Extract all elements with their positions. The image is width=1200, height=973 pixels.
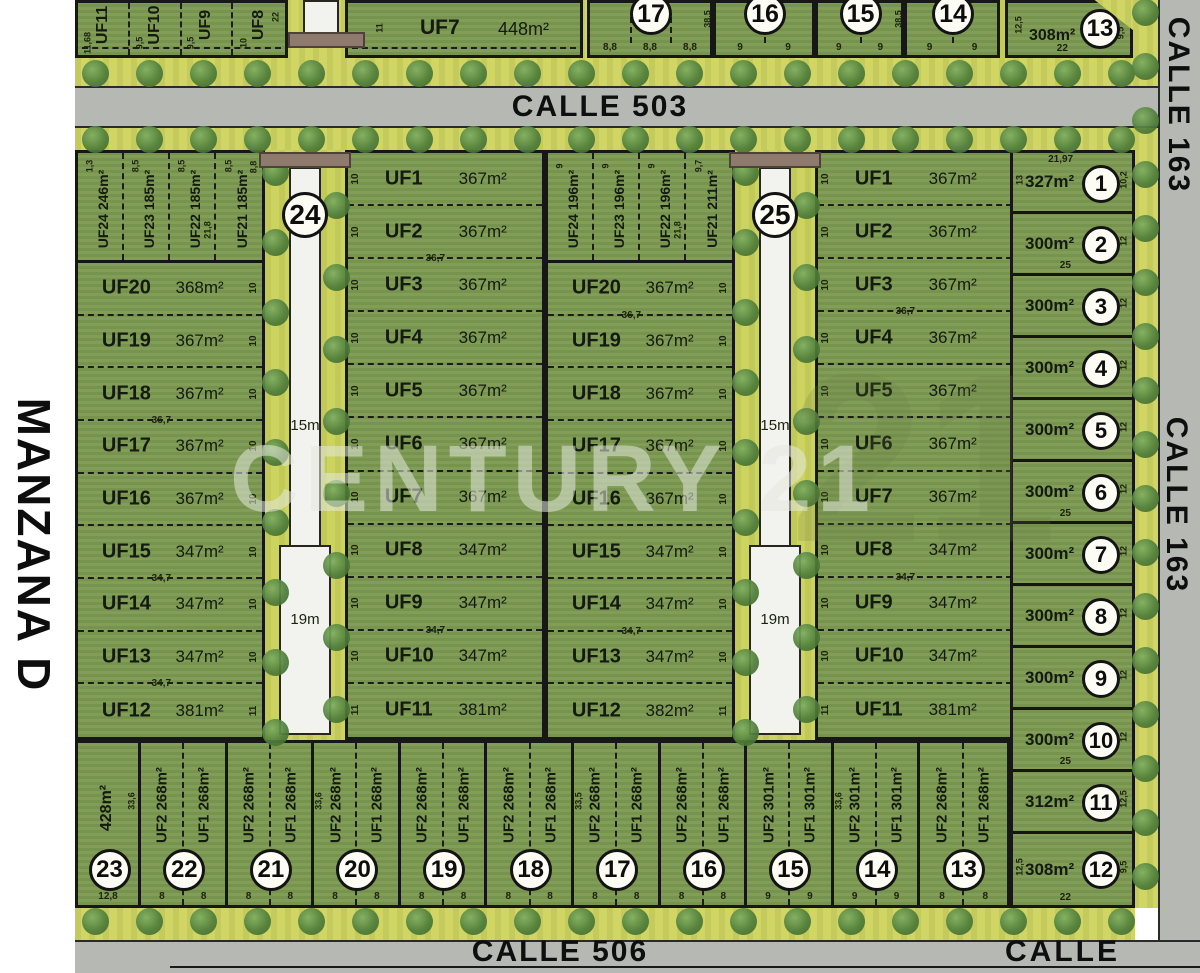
tree bbox=[732, 439, 759, 466]
bottom-dim: 8 bbox=[201, 892, 207, 902]
right-lot-10: 300m²101225 bbox=[1013, 710, 1132, 772]
bottom-dim: 9 bbox=[836, 43, 842, 53]
lot-label: UF21 211m² bbox=[705, 170, 719, 248]
tree bbox=[514, 60, 541, 87]
lot-number-circle: 21 bbox=[250, 849, 292, 891]
lot-area: 428m² bbox=[99, 785, 115, 831]
lot-number-circle: 2 bbox=[1082, 226, 1120, 264]
block-24-west: UF24 246m²1,3UF23 185m²8,5UF22 185m²8,52… bbox=[75, 150, 265, 740]
right-width-dim: 12 bbox=[1120, 484, 1129, 494]
lot-number-circle: 16 bbox=[683, 849, 725, 891]
tree bbox=[1132, 485, 1159, 512]
lot-number-circle: 4 bbox=[1082, 350, 1120, 388]
lot-label: UF1 bbox=[855, 167, 893, 190]
side-dim: 11 bbox=[376, 23, 385, 33]
tree bbox=[793, 480, 820, 507]
bottom-dim: 9 bbox=[972, 43, 978, 53]
lot-number-circle: 18 bbox=[510, 849, 552, 891]
bottom-dim: 25 bbox=[1060, 261, 1071, 271]
lot-area: 347m² bbox=[459, 593, 507, 613]
lot-label: UF17 bbox=[102, 435, 151, 458]
lot-25-UF12: UF12382m²11 bbox=[548, 684, 732, 737]
right-lot-3: 300m²312 bbox=[1013, 276, 1132, 338]
side-width-dim: 10 bbox=[719, 493, 729, 504]
lot-area: 367m² bbox=[459, 328, 507, 348]
lot-label: UF18 bbox=[102, 382, 151, 405]
tree bbox=[298, 60, 325, 87]
lot-label: UF2 268m² bbox=[328, 767, 343, 843]
lot-width-dim: 11,68 bbox=[83, 32, 92, 54]
tree bbox=[323, 696, 350, 723]
lot-area: 347m² bbox=[176, 594, 224, 614]
depth-dim: 33,6 bbox=[834, 793, 843, 811]
side-width-dim: 10 bbox=[821, 226, 831, 237]
tree bbox=[676, 60, 703, 87]
tree bbox=[244, 60, 271, 87]
lot-label: UF8 bbox=[251, 10, 267, 40]
tree bbox=[1132, 377, 1159, 404]
tree bbox=[1054, 60, 1081, 87]
bottom-lot-13: UF2 268m²UF1 268m²1388 bbox=[920, 743, 1007, 905]
lot-25-UF6: UF6367m²10 bbox=[818, 418, 1012, 471]
tree bbox=[1054, 908, 1081, 935]
tree bbox=[946, 908, 973, 935]
lot-label: UF7 bbox=[385, 486, 423, 509]
lot-24-UF20: UF20368m²10 bbox=[78, 263, 262, 316]
tree bbox=[136, 126, 163, 153]
lot-label: UF6 bbox=[855, 432, 893, 455]
lot-24-UF19: UF19367m²10 bbox=[78, 316, 262, 369]
tree bbox=[1000, 126, 1027, 153]
lot-number-circle: 17 bbox=[630, 0, 672, 35]
lot-area: 367m² bbox=[929, 275, 977, 295]
tree bbox=[1108, 60, 1135, 87]
bottom-row: 428m²2312,833,6UF2 268m²UF1 268m²2288UF2… bbox=[75, 740, 1010, 908]
right-lot-column: 327m²110,21321,97300m²21225300m²312300m²… bbox=[1010, 150, 1135, 908]
bottom-lot-18: UF2 268m²UF1 268m²1888 bbox=[487, 743, 574, 905]
side-width-dim: 11 bbox=[249, 705, 259, 716]
tree bbox=[1000, 908, 1027, 935]
side-width-dim: 10 bbox=[719, 441, 729, 452]
block-25-west: UF24 196m²9UF23 196m²9UF22 196m²921,8UF2… bbox=[545, 150, 735, 740]
right-lot-6: 300m²61225 bbox=[1013, 462, 1132, 524]
tree bbox=[622, 60, 649, 87]
depth-dim: 33,6 bbox=[315, 793, 324, 811]
lot-area: 300m² bbox=[1025, 668, 1074, 688]
block-number-circle: 25 bbox=[752, 192, 798, 238]
tree bbox=[784, 908, 811, 935]
bottom-dim: 8 bbox=[461, 892, 467, 902]
tree bbox=[793, 624, 820, 651]
lot-number-circle: 16 bbox=[744, 0, 786, 35]
side-width-dim: 10 bbox=[249, 599, 259, 610]
lot-area: 381m² bbox=[929, 700, 977, 720]
lot-area: 300m² bbox=[1025, 234, 1074, 254]
lot-25-UF15: UF15347m²10 bbox=[548, 526, 732, 579]
tree bbox=[1132, 161, 1159, 188]
bottom-dim: 8 bbox=[547, 892, 553, 902]
right-width-dim: 12 bbox=[1120, 608, 1129, 618]
side-width-dim: 10 bbox=[249, 651, 259, 662]
block-number-circle: 24 bbox=[282, 192, 328, 238]
lot-label: UF10 bbox=[855, 645, 904, 668]
tree bbox=[622, 126, 649, 153]
lot-area: 300m² bbox=[1025, 296, 1074, 316]
bottom-lot-17: UF2 268m²UF1 268m²178833,5 bbox=[574, 743, 661, 905]
tree bbox=[1132, 53, 1159, 80]
lot-label: UF2 bbox=[855, 220, 893, 243]
bottom-dim: 22 bbox=[1060, 893, 1071, 903]
side-width-dim: 10 bbox=[821, 598, 831, 609]
lot-number-circle: 11 bbox=[1082, 784, 1120, 822]
top-lot-17: 8,88,88,81738,5 bbox=[587, 0, 713, 58]
tree bbox=[460, 908, 487, 935]
side-width-dim: 10 bbox=[821, 651, 831, 662]
side-width-dim: 11 bbox=[821, 705, 831, 716]
tree bbox=[730, 908, 757, 935]
side-width-dim: 10 bbox=[821, 438, 831, 449]
lot-area: 300m² bbox=[1025, 420, 1074, 440]
tree bbox=[732, 229, 759, 256]
tree bbox=[323, 408, 350, 435]
tree bbox=[82, 126, 109, 153]
bottom-lot-15: UF2 301m²UF1 301m²1599 bbox=[747, 743, 834, 905]
bottom-dim: 9 bbox=[807, 892, 813, 902]
top-lot-15: 991538,5 bbox=[815, 0, 904, 58]
right-lot-11: 312m²1112,5 bbox=[1013, 772, 1132, 834]
lot-area: 367m² bbox=[459, 487, 507, 507]
tree bbox=[793, 408, 820, 435]
lot-24-UF24: UF24 246m²1,3 bbox=[78, 153, 124, 260]
walkway-crossing-top-strip bbox=[288, 32, 365, 48]
lot-area: 381m² bbox=[459, 700, 507, 720]
lot-area: 367m² bbox=[646, 278, 694, 298]
side-width-dim: 10 bbox=[821, 385, 831, 396]
under-dim: 34,7 bbox=[152, 574, 171, 584]
right-lot-2: 300m²21225 bbox=[1013, 214, 1132, 276]
right-width-dim: 12 bbox=[1120, 732, 1129, 742]
bottom-dim: 12,8 bbox=[98, 892, 117, 902]
lot-number-circle: 13 bbox=[943, 849, 985, 891]
tree bbox=[190, 60, 217, 87]
side-width-dim: 10 bbox=[249, 335, 259, 346]
lot-area: 367m² bbox=[646, 489, 694, 509]
under-dim: 34,7 bbox=[426, 626, 445, 636]
lot-24-UF16: UF16367m²10 bbox=[78, 474, 262, 527]
tree bbox=[838, 126, 865, 153]
bottom-dim: 9 bbox=[894, 892, 900, 902]
tree bbox=[568, 60, 595, 87]
lot-label: UF1 bbox=[385, 167, 423, 190]
lot-area: 347m² bbox=[929, 540, 977, 560]
lot-number-circle: 10 bbox=[1082, 722, 1120, 760]
lot-label: UF1 268m² bbox=[370, 767, 385, 843]
lot-label: UF3 bbox=[855, 273, 893, 296]
tree bbox=[730, 126, 757, 153]
bottom-lot-14: UF2 301m²UF1 301m²149933,6 bbox=[834, 743, 921, 905]
tree bbox=[262, 299, 289, 326]
lot-area: 367m² bbox=[176, 436, 224, 456]
tree bbox=[793, 552, 820, 579]
lot-label: UF1 268m² bbox=[716, 767, 731, 843]
lot-number-circle: 14 bbox=[932, 0, 974, 35]
tree bbox=[323, 552, 350, 579]
lot-label: UF11 bbox=[855, 699, 903, 722]
tree bbox=[892, 126, 919, 153]
lot-number-circle: 12 bbox=[1082, 851, 1120, 889]
tree bbox=[784, 126, 811, 153]
lot-label: UF16 bbox=[102, 487, 151, 510]
lot-area: 367m² bbox=[929, 381, 977, 401]
tree bbox=[1132, 215, 1159, 242]
tree bbox=[82, 60, 109, 87]
side-width-dim: 10 bbox=[351, 438, 361, 449]
lot-label: UF2 268m² bbox=[675, 767, 690, 843]
bottom-dim: 9 bbox=[852, 892, 858, 902]
tree bbox=[190, 126, 217, 153]
lot-number-circle: 7 bbox=[1082, 536, 1120, 574]
side-width-dim: 10 bbox=[351, 651, 361, 662]
lot-label: UF3 bbox=[385, 273, 423, 296]
lot-25-UF19: UF19367m²10 bbox=[548, 316, 732, 369]
bottom-dim: 8 bbox=[246, 892, 252, 902]
bottom-dim: 8 bbox=[721, 892, 727, 902]
lot-number-circle: 6 bbox=[1082, 474, 1120, 512]
side-depth-dim: 21,8 bbox=[204, 221, 213, 239]
tree bbox=[244, 126, 271, 153]
lot-area: 300m² bbox=[1025, 482, 1074, 502]
lot-label: UF6 bbox=[385, 432, 423, 455]
tree bbox=[568, 908, 595, 935]
corner-dim: 8,8 bbox=[250, 161, 259, 174]
lot-label: UF22 196m² bbox=[658, 169, 672, 248]
tree bbox=[838, 908, 865, 935]
bottom-dim: 8 bbox=[679, 892, 685, 902]
right-width-dim: 10,2 bbox=[1120, 171, 1129, 189]
bottom-lot-19: UF2 268m²UF1 268m²1988 bbox=[401, 743, 488, 905]
walkway-crossing bbox=[259, 152, 351, 168]
bottom-dim: 8 bbox=[983, 892, 989, 902]
lot-area: 367m² bbox=[176, 489, 224, 509]
lot-area: 308m² bbox=[1029, 27, 1075, 45]
tree bbox=[460, 126, 487, 153]
tree bbox=[1132, 809, 1159, 836]
lot-area: 367m² bbox=[929, 328, 977, 348]
lot-24-UF5: UF5367m²10 bbox=[348, 365, 542, 418]
lot-area: 367m² bbox=[176, 384, 224, 404]
depth-dim: 33,6 bbox=[128, 793, 137, 811]
lot-24-UF13: UF13347m²1034,7 bbox=[78, 632, 262, 685]
right-lot-7: 300m²712 bbox=[1013, 524, 1132, 586]
lot-number-circle: 19 bbox=[423, 849, 465, 891]
right-width-dim: 12 bbox=[1120, 236, 1129, 246]
tree bbox=[793, 696, 820, 723]
lot-25-UF21: UF21 211m²9,7 bbox=[686, 153, 732, 260]
lot-label: UF5 bbox=[385, 379, 423, 402]
left-width-dim: 13 bbox=[1016, 175, 1025, 185]
lot-25-UF1: UF1367m²10 bbox=[818, 153, 1012, 206]
lot-label: UF11 bbox=[385, 699, 433, 722]
lot-label: UF10 bbox=[385, 645, 434, 668]
lot-label: UF13 bbox=[102, 645, 151, 668]
tree bbox=[262, 649, 289, 676]
lot-24-UF7: UF7367m²10 bbox=[348, 472, 542, 525]
lot-area: 368m² bbox=[176, 278, 224, 298]
street-label-calle-163-top: CALLE 163 bbox=[1160, 0, 1196, 215]
lot-label: UF1 268m² bbox=[457, 767, 472, 843]
tree bbox=[406, 908, 433, 935]
lot-area: 367m² bbox=[929, 487, 977, 507]
lot-area: 300m² bbox=[1025, 606, 1074, 626]
side-width-dim: 10 bbox=[249, 546, 259, 557]
side-width-dim: 11 bbox=[719, 705, 729, 716]
lot-label: UF2 301m² bbox=[761, 767, 776, 843]
side-width-dim: 10 bbox=[351, 598, 361, 609]
side-width-dim: 10 bbox=[719, 546, 729, 557]
bottom-dim: 8,8 bbox=[683, 43, 697, 53]
tree bbox=[262, 439, 289, 466]
lot-area: 381m² bbox=[176, 701, 224, 721]
lot-25-UF20: UF20367m²1036,7 bbox=[548, 263, 732, 316]
tree bbox=[793, 264, 820, 291]
lot-area: 347m² bbox=[646, 542, 694, 562]
tree bbox=[1108, 908, 1135, 935]
lot-area: 347m² bbox=[929, 593, 977, 613]
lot-label: UF4 bbox=[385, 326, 423, 349]
bottom-dim: 25 bbox=[1060, 509, 1071, 519]
tree bbox=[732, 299, 759, 326]
tree bbox=[1132, 755, 1159, 782]
lot-area: 327m² bbox=[1025, 172, 1074, 192]
lot-25-UF9: UF9347m²10 bbox=[818, 578, 1012, 631]
lot-area: 367m² bbox=[929, 434, 977, 454]
lot-area: 312m² bbox=[1025, 792, 1074, 812]
tree bbox=[622, 908, 649, 935]
tree bbox=[1132, 0, 1159, 26]
side-depth-dim: 38,5 bbox=[895, 10, 904, 28]
right-lot-1: 327m²110,21321,97 bbox=[1013, 153, 1132, 214]
lot-24-UF3: UF3367m²10 bbox=[348, 259, 542, 312]
lot-label: UF19 bbox=[572, 329, 621, 352]
right-width-dim: 12 bbox=[1120, 546, 1129, 556]
lot-area: 347m² bbox=[646, 647, 694, 667]
lot-area: 367m² bbox=[459, 434, 507, 454]
bottom-dim: 8 bbox=[332, 892, 338, 902]
top-lot-14: 9914 bbox=[904, 0, 1000, 58]
lot-area: 300m² bbox=[1025, 544, 1074, 564]
side-width-dim: 10 bbox=[249, 388, 259, 399]
lot-24-UF8: UF8347m²10 bbox=[348, 525, 542, 578]
front-dash-line bbox=[352, 47, 576, 49]
lot-label: UF2 268m² bbox=[155, 767, 170, 843]
tree bbox=[1108, 126, 1135, 153]
lot-area: 347m² bbox=[459, 540, 507, 560]
lot-label: UF7 bbox=[855, 486, 893, 509]
lot-area: 367m² bbox=[459, 169, 507, 189]
lot-24-UF10: UF10347m²10 bbox=[348, 631, 542, 684]
lot-label: UF9 bbox=[198, 10, 214, 40]
depth-dim: 33,5 bbox=[575, 793, 584, 811]
right-width-dim: 12 bbox=[1120, 298, 1129, 308]
under-dim: 34,7 bbox=[152, 679, 171, 689]
top-lot-16: 9916 bbox=[713, 0, 815, 58]
side-width-dim: 10 bbox=[351, 279, 361, 290]
lot-area: 382m² bbox=[646, 701, 694, 721]
tree bbox=[784, 60, 811, 87]
tree bbox=[730, 60, 757, 87]
lot-area: 367m² bbox=[646, 384, 694, 404]
lot-label: UF2 268m² bbox=[501, 767, 516, 843]
lot-area: 308m² bbox=[1025, 860, 1074, 880]
side-width-dim: 10 bbox=[351, 332, 361, 343]
manzana-d-label: MANZANA D bbox=[11, 385, 61, 705]
lot-24-UF9: UF9347m²1034,7 bbox=[348, 578, 542, 631]
lot-uf7: 11UF7448m² bbox=[345, 0, 583, 58]
lot-label: UF14 bbox=[102, 593, 151, 616]
bottom-dim: 8,8 bbox=[643, 43, 657, 53]
lot-24-UF15: UF15347m²1034,7 bbox=[78, 526, 262, 579]
lot-label: UF2 268m² bbox=[415, 767, 430, 843]
bottom-dim: 8 bbox=[634, 892, 640, 902]
bottom-dim: 9 bbox=[737, 43, 743, 53]
side-width-dim: 10 bbox=[719, 388, 729, 399]
side-width-dim: 11 bbox=[351, 705, 361, 716]
lot-number-circle: 3 bbox=[1082, 288, 1120, 326]
lot-24-UF4: UF4367m²10 bbox=[348, 312, 542, 365]
lot-area: 347m² bbox=[176, 647, 224, 667]
tree bbox=[732, 369, 759, 396]
tree bbox=[1132, 647, 1159, 674]
left-width-dim: 12,5 bbox=[1016, 858, 1025, 876]
bottom-dim: 8 bbox=[159, 892, 165, 902]
tree bbox=[1132, 863, 1159, 890]
tree bbox=[460, 60, 487, 87]
lot-24-UF17: UF17367m²10 bbox=[78, 421, 262, 474]
lot-25-UF11: UF11381m²11 bbox=[818, 684, 1012, 737]
tree bbox=[323, 480, 350, 507]
left-dim: 12,5 bbox=[1015, 16, 1024, 34]
lot-label: UF23 196m² bbox=[612, 169, 626, 248]
lot-label: UF22 185m² bbox=[188, 169, 202, 248]
side-width-dim: 10 bbox=[821, 545, 831, 556]
lot-25-UF4: UF4367m²10 bbox=[818, 312, 1012, 365]
walkway-path-top-strip bbox=[303, 0, 339, 34]
right-width-dim: 12,5 bbox=[1120, 790, 1129, 808]
side-width-dim: 10 bbox=[351, 226, 361, 237]
lot-number-circle: 23 bbox=[89, 849, 131, 891]
lot-label: UF20 bbox=[102, 277, 151, 300]
tree bbox=[190, 908, 217, 935]
side-width-dim: 10 bbox=[821, 279, 831, 290]
lot-label: UF15 bbox=[102, 540, 151, 563]
tree bbox=[262, 509, 289, 536]
lot-area: 347m² bbox=[176, 542, 224, 562]
tree bbox=[1132, 593, 1159, 620]
block-24-top-lots: UF24 246m²1,3UF23 185m²8,5UF22 185m²8,52… bbox=[78, 153, 262, 263]
tree bbox=[352, 908, 379, 935]
tree bbox=[676, 126, 703, 153]
lot-area: 367m² bbox=[459, 222, 507, 242]
lot-label: UF21 185m² bbox=[235, 169, 249, 248]
top-width-dim: 1,3 bbox=[86, 160, 95, 173]
verge-calle503-north bbox=[75, 58, 1133, 86]
top-width-dim: 8,5 bbox=[224, 160, 233, 173]
under-dim: 34,7 bbox=[622, 627, 641, 637]
tree bbox=[244, 908, 271, 935]
tree bbox=[352, 60, 379, 87]
lot-label: UF12 bbox=[572, 699, 621, 722]
right-lot-5: 300m²512 bbox=[1013, 400, 1132, 462]
